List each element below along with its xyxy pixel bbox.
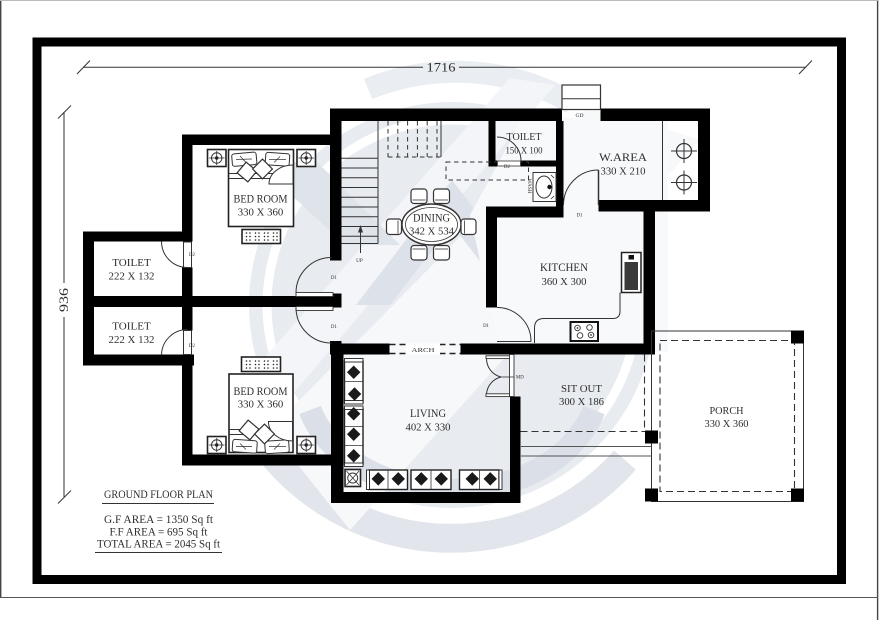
svg-text:D2: D2 <box>504 165 510 170</box>
svg-text:TOILET: TOILET <box>507 132 542 143</box>
svg-text:936: 936 <box>57 288 71 312</box>
svg-text:SIT OUT: SIT OUT <box>561 383 602 395</box>
svg-text:TOILET: TOILET <box>112 257 151 269</box>
svg-text:330 X 360: 330 X 360 <box>238 398 284 410</box>
svg-text:MD: MD <box>516 376 524 381</box>
svg-text:D2: D2 <box>189 344 195 349</box>
svg-text:D2: D2 <box>189 253 195 258</box>
svg-text:330 X 360: 330 X 360 <box>705 419 749 430</box>
svg-text:330 X 360: 330 X 360 <box>238 206 284 218</box>
svg-text:DINING: DINING <box>413 213 450 225</box>
svg-text:D1: D1 <box>483 324 489 329</box>
svg-text:150 X 100: 150 X 100 <box>506 147 543 157</box>
svg-text:D1: D1 <box>577 214 583 219</box>
svg-text:360 X 300: 360 X 300 <box>542 276 587 288</box>
svg-text:402 X 330: 402 X 330 <box>406 422 451 434</box>
svg-text:BED ROOM: BED ROOM <box>234 194 288 206</box>
svg-text:ARCH: ARCH <box>412 347 435 354</box>
svg-text:342 X 534: 342 X 534 <box>409 226 454 238</box>
svg-text:TOILET: TOILET <box>112 321 151 333</box>
svg-text:WASH: WASH <box>526 179 532 194</box>
svg-text:LIVING: LIVING <box>410 408 446 420</box>
svg-text:GROUND FLOOR PLAN: GROUND FLOOR PLAN <box>104 487 213 501</box>
svg-text:222 X 132: 222 X 132 <box>109 335 155 346</box>
svg-text:TOTAL AREA = 2045 Sq ft: TOTAL AREA = 2045 Sq ft <box>97 539 221 551</box>
svg-text:1716: 1716 <box>427 61 456 75</box>
svg-text:F.F AREA = 695 Sq ft: F.F AREA = 695 Sq ft <box>110 527 209 539</box>
svg-text:D1: D1 <box>331 325 337 330</box>
svg-text:G.F AREA = 1350 Sq ft: G.F AREA = 1350 Sq ft <box>104 514 214 526</box>
svg-text:W.AREA: W.AREA <box>599 152 648 164</box>
svg-text:D1: D1 <box>331 276 337 281</box>
svg-text:BED ROOM: BED ROOM <box>234 386 288 398</box>
svg-text:KITCHEN: KITCHEN <box>540 262 589 274</box>
svg-text:330 X 210: 330 X 210 <box>601 167 646 178</box>
svg-text:300 X 186: 300 X 186 <box>559 397 604 408</box>
svg-text:UP: UP <box>356 258 363 264</box>
svg-text:PORCH: PORCH <box>710 405 744 417</box>
svg-text:GD: GD <box>576 113 584 119</box>
svg-text:222 X 132: 222 X 132 <box>109 272 155 283</box>
